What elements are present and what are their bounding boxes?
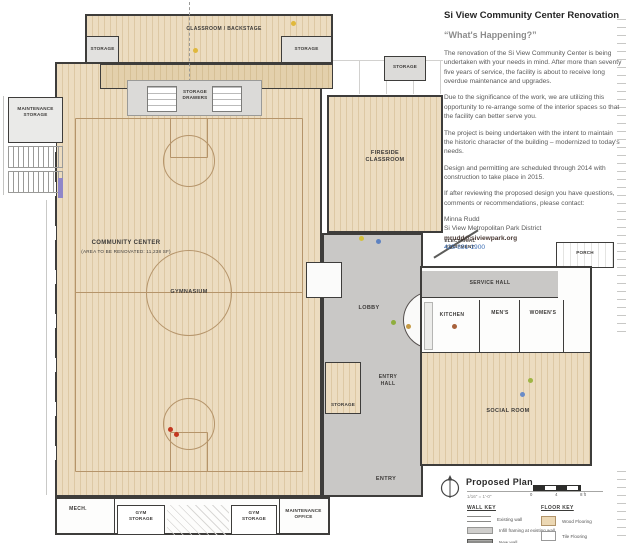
wall-key-row: Existing wall	[467, 516, 539, 522]
page-title: Si View Community Center Renovation	[444, 10, 622, 21]
label-fireside-classroom: FIRESIDE CLASSROOM	[347, 150, 423, 164]
person-marker	[391, 320, 396, 325]
person-marker	[193, 48, 198, 53]
scale-tick: 8 ft	[580, 492, 586, 497]
court-key	[170, 118, 208, 158]
person-marker	[359, 236, 364, 241]
label-lobby: LOBBY	[339, 305, 399, 312]
scale-bar	[533, 485, 581, 491]
label-gym-storage-left: GYM STORAGE	[118, 510, 164, 522]
kitchen-counter	[424, 302, 433, 350]
page-subtitle: “What's Happening?”	[444, 30, 622, 40]
label-kitchen: KITCHEN	[430, 312, 474, 319]
info-panel: Si View Community Center Renovation “Wha…	[444, 10, 622, 252]
room-mens	[480, 300, 520, 352]
gym-mat	[58, 178, 63, 198]
floor-key-row: Tile Flooring	[541, 531, 613, 541]
wall-key-row: New wall	[467, 539, 539, 543]
label-storage-lobby: STORAGE	[326, 402, 360, 408]
scale-tick: 0	[530, 492, 532, 497]
label-gymnasium: GYMNASIUM	[154, 289, 224, 296]
north-arrow-icon	[438, 474, 462, 500]
body-paragraph: If after reviewing the proposed design y…	[444, 189, 622, 208]
object-marker-red	[174, 432, 179, 437]
wall-key-title: WALL KEY	[467, 505, 539, 511]
wall-key: WALL KEY Existing wall Infill framing at…	[467, 505, 539, 543]
body-paragraph: The project is being undertaken with the…	[444, 129, 622, 157]
contact-email: mrudd@siviewpark.org	[444, 234, 622, 243]
court-key	[170, 432, 208, 472]
label-storage-stage-left: STORAGE	[87, 46, 118, 52]
label-service-hall: SERVICE HALL	[448, 280, 532, 287]
drawer-cabinet	[147, 86, 177, 112]
tile-flooring-swatch	[541, 531, 556, 541]
label-mens: MEN'S	[482, 310, 518, 317]
wall-key-label: Existing wall	[497, 517, 522, 522]
plan-title: Proposed Plan	[466, 477, 533, 487]
floor-key-row: Wood Flooring	[541, 516, 613, 526]
drawer-cabinet	[212, 86, 242, 112]
new-wall-swatch	[467, 539, 493, 543]
label-gym-storage-right: GYM STORAGE	[232, 510, 276, 522]
contact-block: Minna Rudd Si View Metropolitan Park Dis…	[444, 215, 622, 252]
label-maintenance-storage: MAINTENANCE STORAGE	[10, 106, 61, 118]
label-maintenance-office: MAINTENANCE OFFICE	[280, 508, 327, 520]
room-maintenance-storage	[8, 97, 63, 143]
person-marker	[376, 239, 381, 244]
label-entry: ENTRY	[356, 476, 416, 483]
person-marker	[406, 324, 411, 329]
contact-org: Si View Metropolitan Park District	[444, 224, 622, 233]
scale-tick: 4	[555, 492, 557, 497]
person-marker	[452, 324, 457, 329]
person-marker	[528, 378, 533, 383]
room-womens	[522, 300, 564, 352]
contact-name: Minna Rudd	[444, 215, 622, 224]
label-community-center-note: (AREA TO BE RENOVATED: 11,238 SF)	[60, 249, 192, 255]
label-storage-top-right: STORAGE	[385, 64, 425, 70]
floor-key-label: Tile Flooring	[562, 534, 587, 539]
keynote-list	[617, 470, 626, 536]
wall-key-row: Infill framing at existing wall	[467, 527, 539, 534]
stairs	[8, 146, 63, 168]
site-line	[46, 200, 47, 495]
label-mech: MECH.	[53, 506, 103, 513]
room-mech	[57, 499, 115, 533]
person-marker	[291, 21, 296, 26]
body-paragraph: Design and permitting are scheduled thro…	[444, 164, 622, 183]
flyer-page: CLASSROOM / BACKSTAGE STORAGE STORAGE ST…	[0, 0, 628, 543]
stage-centerline	[189, 2, 190, 92]
stairs	[8, 171, 63, 193]
floor-key-label: Wood Flooring	[562, 519, 592, 524]
label-womens: WOMEN'S	[524, 310, 562, 317]
infill-wall-swatch	[467, 527, 493, 534]
label-community-center: COMMUNITY CENTER	[60, 240, 192, 248]
label-social-room: SOCIAL ROOM	[468, 408, 548, 415]
label-storage-stage-right: STORAGE	[282, 46, 331, 52]
existing-wall-swatch	[467, 516, 491, 522]
crawl-space	[167, 505, 229, 535]
body-paragraph: Due to the significance of the work, we …	[444, 93, 622, 121]
floor-key: FLOOR KEY Wood Flooring Tile Flooring Hi…	[541, 505, 613, 543]
scale-ticks: 0 4 8 ft	[530, 492, 586, 497]
label-storage-drawers: STORAGE DRAWERS	[177, 89, 213, 101]
contact-phone-link[interactable]: 425-831-1900	[444, 243, 622, 252]
floor-key-title: FLOOR KEY	[541, 505, 613, 511]
scale-note: 1/16" = 1'-0"	[467, 494, 491, 499]
site-line	[3, 96, 4, 195]
wood-flooring-swatch	[541, 516, 556, 526]
vestibule	[306, 262, 342, 298]
body-paragraph: The renovation of the Si View Community …	[444, 49, 622, 86]
label-classroom-backstage: CLASSROOM / BACKSTAGE	[154, 26, 294, 33]
person-marker	[520, 392, 525, 397]
object-marker-red	[168, 427, 173, 432]
label-entry-hall: ENTRY HALL	[362, 374, 414, 387]
